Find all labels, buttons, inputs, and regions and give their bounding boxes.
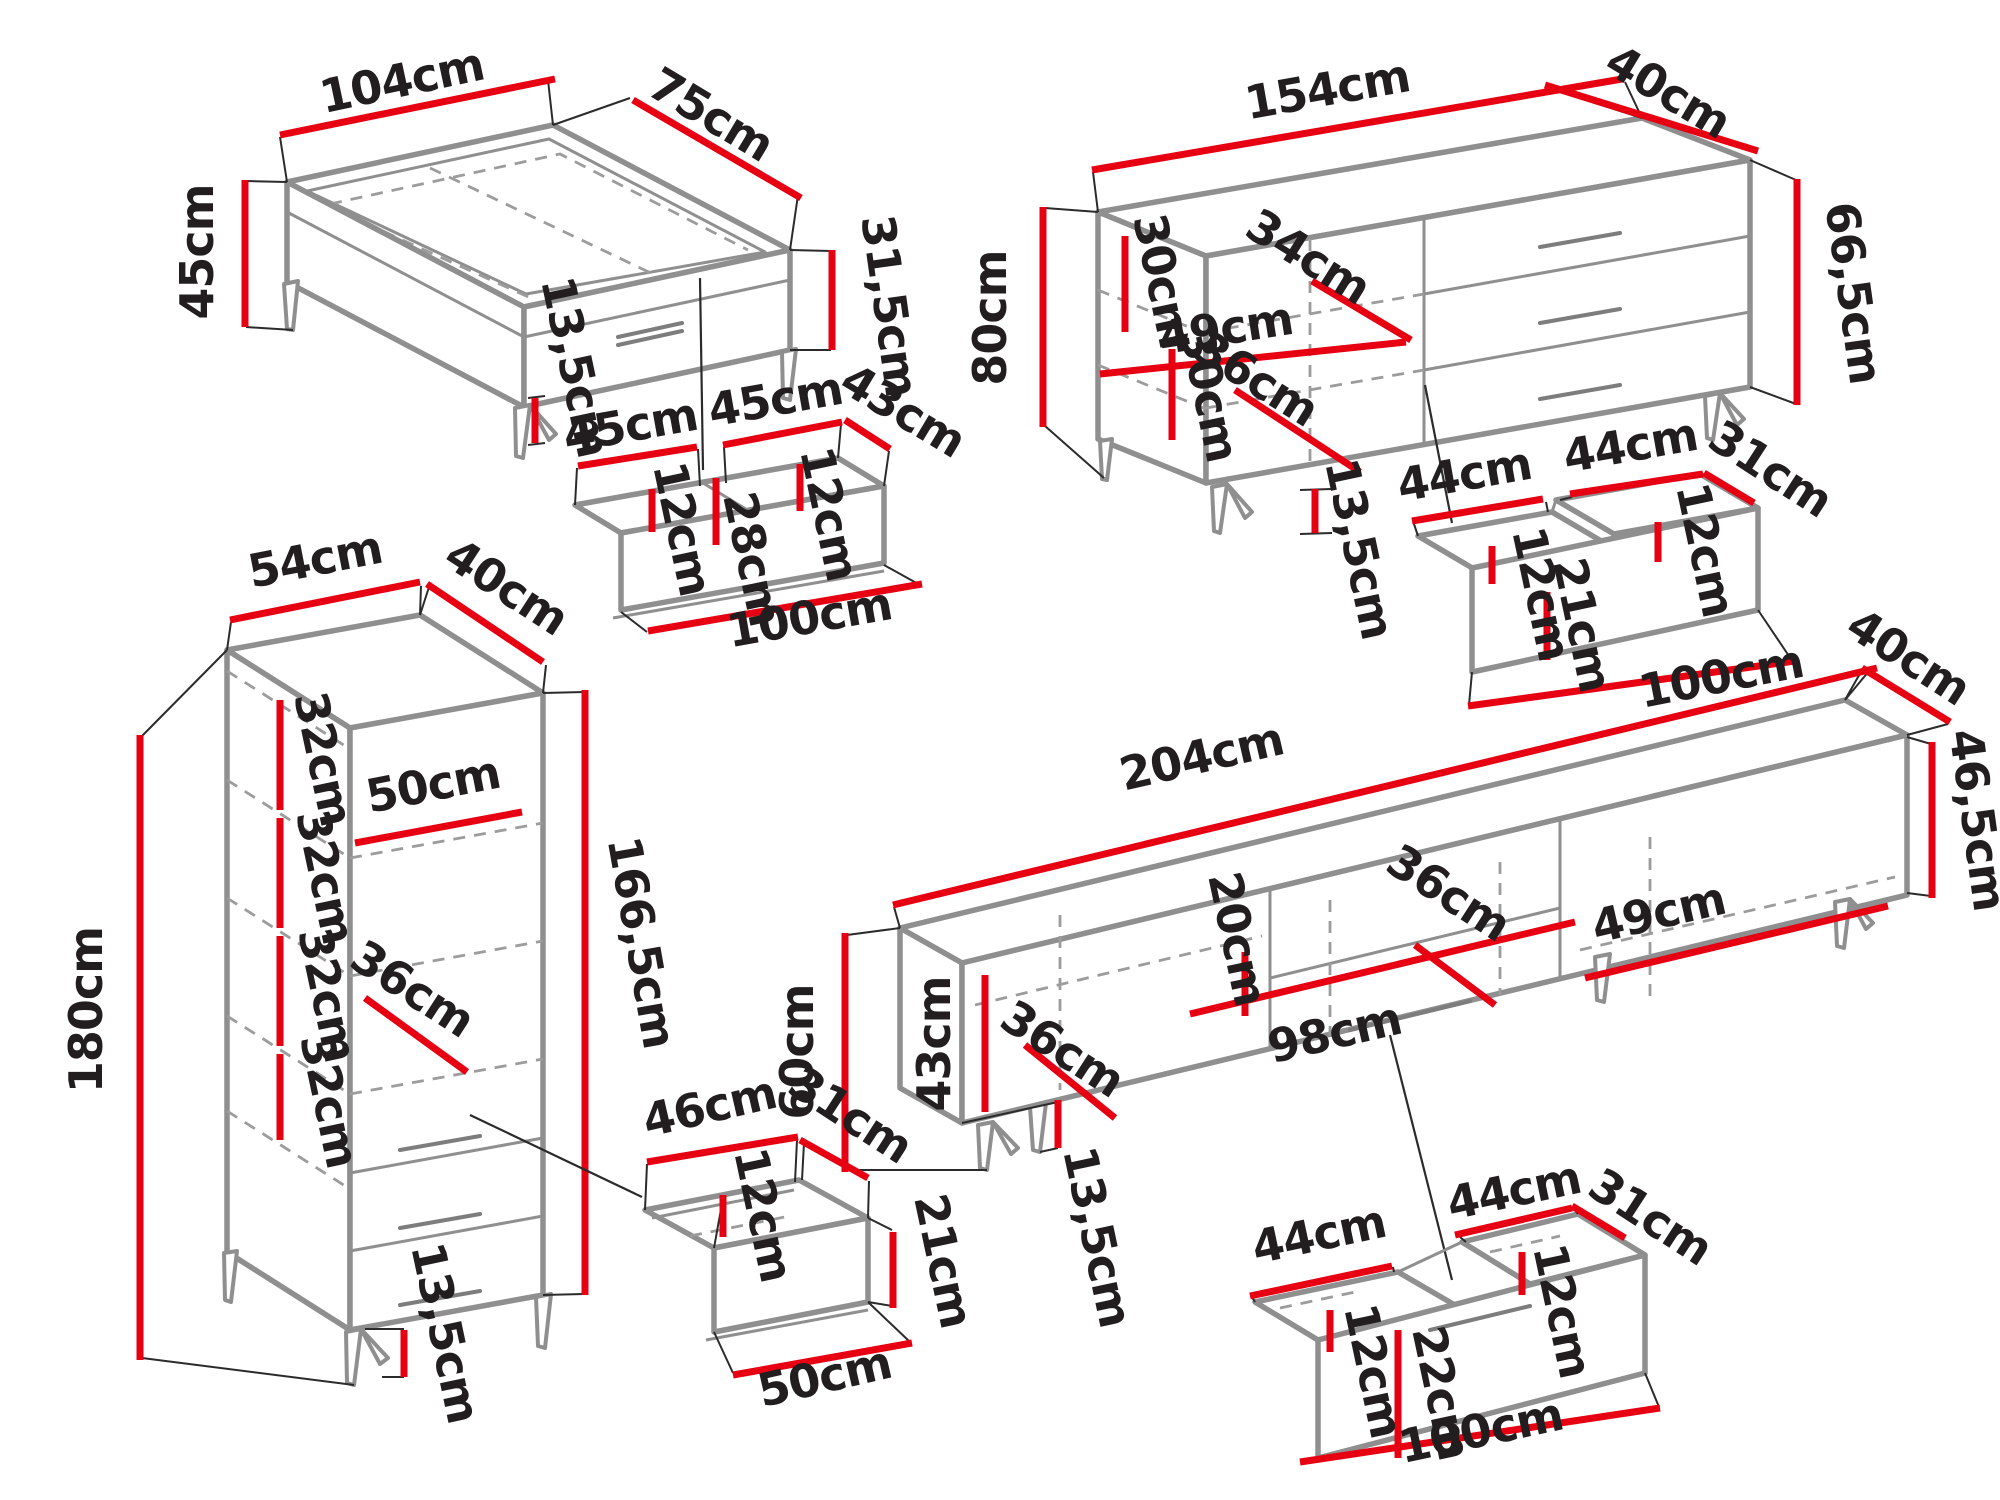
dim-label-p6-width: 204cm	[1114, 711, 1288, 801]
tall-cabinet-leg-back	[224, 1251, 237, 1302]
dim-label-p7-length: 50cm	[752, 1335, 896, 1418]
dim-label-p1-height: 45cm	[170, 184, 224, 319]
dim-label-p3-side: 66,5cm	[1814, 199, 1893, 387]
dim-label-p7-width: 46cm	[637, 1065, 781, 1148]
dim-label-p5-width: 54cm	[243, 520, 386, 599]
dim-label-p5-height: 180cm	[59, 927, 113, 1093]
dim-label-p5-depth: 40cm	[435, 527, 578, 646]
leader-tv-stand-to-drawer	[1390, 1035, 1452, 1280]
sideboard-leg-back-left	[1100, 439, 1112, 480]
dim-label-p1-depth: 75cm	[639, 56, 783, 172]
dim-label-p3-height: 80cm	[963, 250, 1017, 385]
dim-label-p6-legs: 13,5cm	[1052, 1142, 1143, 1332]
dim-label-p8-w1: 44cm	[1247, 1194, 1390, 1275]
tall-cabinet-leg-front	[346, 1329, 388, 1385]
coffee-table-leg-left	[284, 281, 298, 330]
tall-cabinet-leg-right	[536, 1294, 551, 1348]
tv-stand-leg-2	[1030, 1103, 1046, 1152]
dim-label-p5-side: 166,5cm	[597, 832, 687, 1052]
diagram-svg: 104cm75cm45cm31,5cm13,5cm45cm45cm43cm12c…	[0, 0, 2000, 1500]
tv-stand-leg-1	[978, 1122, 1018, 1170]
dim-label-p3-legs: 13,5cm	[1314, 454, 1405, 644]
sideboard-leg-front-left	[1212, 484, 1252, 533]
tv-stand	[845, 668, 1950, 1280]
dim-label-p7-front: 21cm	[903, 1189, 984, 1332]
furniture-dimension-diagram: 104cm75cm45cm31,5cm13,5cm45cm45cm43cm12c…	[0, 0, 2000, 1500]
dim-label-p6-side: 46,5cm	[1938, 726, 2000, 914]
dim-label-p6-inner-h: 43cm	[907, 976, 961, 1111]
